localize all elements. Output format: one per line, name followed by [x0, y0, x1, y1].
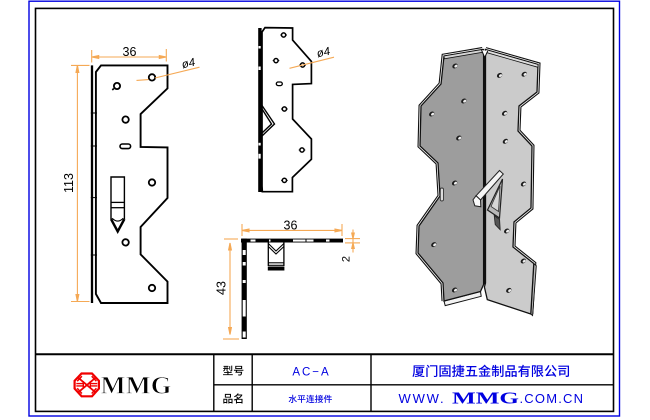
svg-text:MMG: MMG — [101, 373, 172, 400]
svg-text:WWW.: WWW. — [399, 391, 446, 406]
svg-text:2: 2 — [341, 256, 353, 262]
svg-text:36: 36 — [284, 218, 298, 232]
svg-text:MMG: MMG — [452, 389, 519, 408]
svg-text:36: 36 — [123, 45, 137, 59]
svg-text:.COM.CN: .COM.CN — [520, 391, 585, 406]
svg-text:AC−A: AC−A — [292, 366, 330, 378]
svg-text:113: 113 — [62, 173, 76, 193]
svg-text:43: 43 — [215, 281, 229, 295]
